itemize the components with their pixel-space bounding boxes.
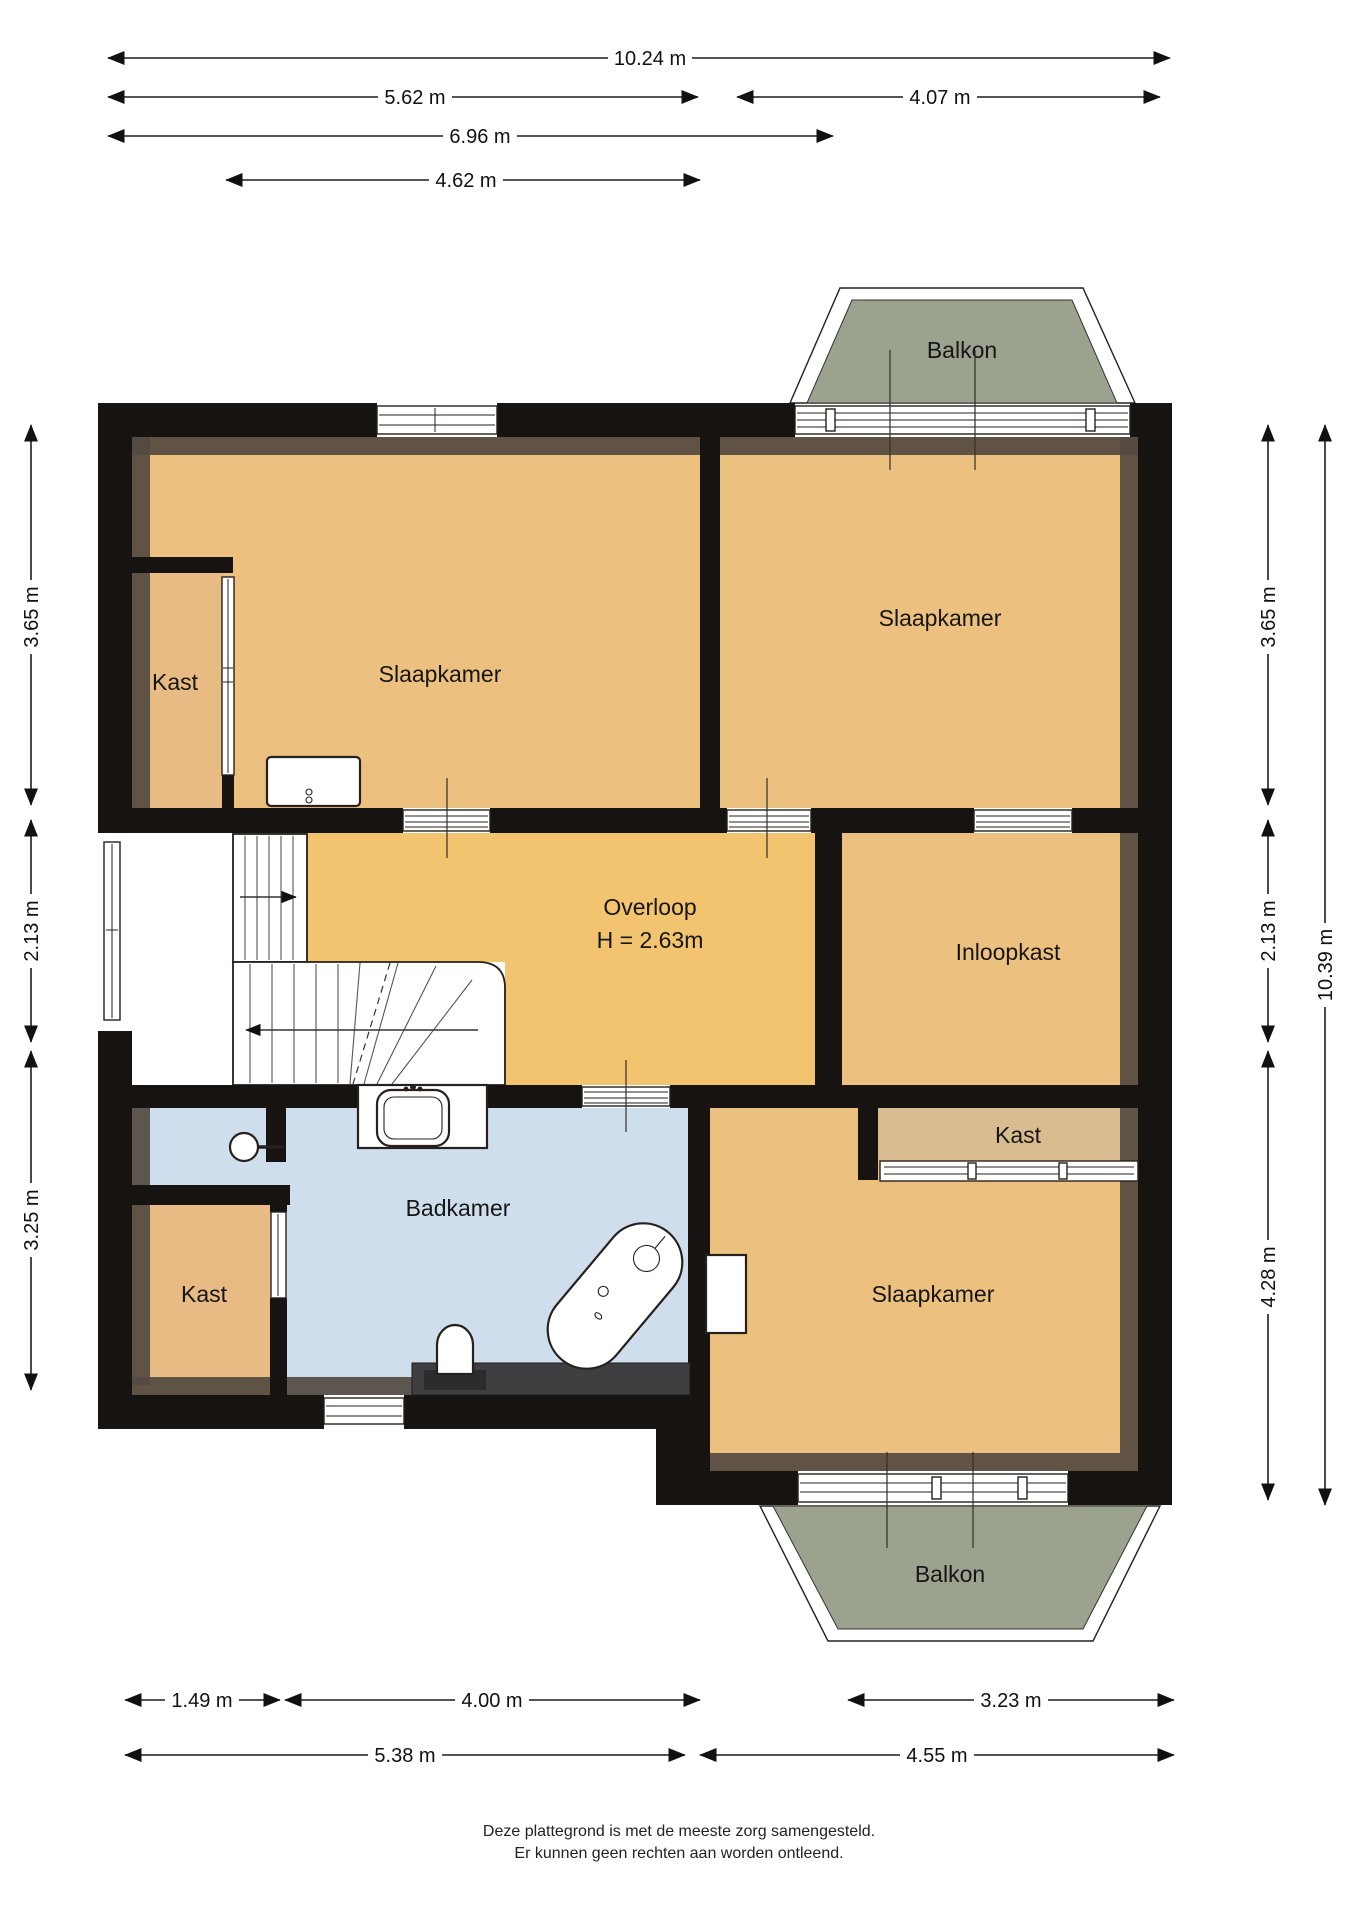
footer-line-1: Deze plattegrond is met de meeste zorg s… [483, 1823, 875, 1840]
svg-text:2.13 m: 2.13 m [1258, 900, 1280, 961]
door-leaf-bedroom-bottom [706, 1255, 746, 1333]
label-bedroom-bottom: Slaapkamer [872, 1281, 995, 1307]
dim-top-696: 6.96 m [108, 125, 833, 148]
dimensions-right: 3.65 m 2.13 m 4.28 m 10.39 m [1257, 425, 1337, 1505]
label-bathroom: Badkamer [406, 1195, 511, 1221]
dim-left-325: 3.25 m [20, 1051, 43, 1390]
dim-top-overall: 10.24 m [108, 47, 1170, 70]
dim-right-428: 4.28 m [1257, 1051, 1280, 1500]
dim-bottom-149: 1.49 m [125, 1689, 280, 1712]
dim-bottom-323: 3.23 m [848, 1689, 1174, 1712]
balcony-bottom-label: Balkon [915, 1561, 985, 1587]
svg-text:6.96 m: 6.96 m [449, 126, 510, 148]
svg-text:4.55 m: 4.55 m [906, 1745, 967, 1767]
svg-text:10.39 m: 10.39 m [1315, 929, 1337, 1001]
svg-text:3.25 m: 3.25 m [21, 1189, 43, 1250]
svg-text:4.07 m: 4.07 m [909, 87, 970, 109]
door-balcony-bottom [798, 1474, 1068, 1502]
label-closet-top-left: Kast [152, 669, 199, 695]
label-bedroom-top-right: Slaapkamer [879, 605, 1002, 631]
dim-left-365: 3.65 m [20, 425, 43, 805]
window-bedroom-top-left [377, 406, 497, 434]
sink [377, 1084, 449, 1146]
svg-text:4.00 m: 4.00 m [461, 1690, 522, 1712]
svg-text:3.23 m: 3.23 m [980, 1690, 1041, 1712]
dim-left-213: 2.13 m [20, 820, 43, 1042]
door-walk-in-closet [974, 810, 1072, 831]
dim-bottom-400: 4.00 m [285, 1689, 700, 1712]
svg-text:5.38 m: 5.38 m [374, 1745, 435, 1767]
svg-text:4.28 m: 4.28 m [1258, 1246, 1280, 1307]
floorplan-page: Balkon Balkon [0, 0, 1358, 1920]
dim-top-left-part: 5.62 m [108, 86, 698, 109]
svg-text:5.62 m: 5.62 m [384, 87, 445, 109]
svg-text:3.65 m: 3.65 m [1258, 586, 1280, 647]
footer-line-2: Er kunnen geen rechten aan worden ontlee… [514, 1845, 843, 1862]
svg-text:3.65 m: 3.65 m [21, 586, 43, 647]
balcony-bottom: Balkon [760, 1506, 1160, 1641]
svg-text:1.49 m: 1.49 m [171, 1690, 232, 1712]
label-landing: Overloop [603, 894, 696, 920]
svg-text:2.13 m: 2.13 m [21, 900, 43, 961]
dim-top-462: 4.62 m [226, 169, 700, 192]
dim-right-365: 3.65 m [1257, 425, 1280, 805]
door-landing-bedroom-right [727, 810, 811, 831]
dim-right-overall: 10.39 m [1314, 425, 1337, 1505]
svg-text:4.62 m: 4.62 m [435, 170, 496, 192]
label-bedroom-top-left: Slaapkamer [379, 661, 502, 687]
svg-text:10.24 m: 10.24 m [614, 48, 686, 70]
dimensions-left: 3.65 m 2.13 m 3.25 m [20, 425, 43, 1390]
door-closet-top-left [222, 577, 234, 775]
dim-bottom-455: 4.55 m [700, 1744, 1174, 1767]
floorplan-drawing: Balkon Balkon [0, 0, 1358, 1920]
dimensions-top: 10.24 m 5.62 m 4.07 m 6.96 m 4.62 m [108, 47, 1170, 192]
label-closet-bedroom: Kast [995, 1122, 1042, 1148]
footer-disclaimer: Deze plattegrond is met de meeste zorg s… [483, 1823, 875, 1862]
stairs-upper-flight [233, 834, 307, 962]
door-closet-bottom-left [271, 1212, 286, 1298]
balcony-top: Balkon [790, 288, 1135, 403]
label-walk-in-closet: Inloopkast [956, 939, 1061, 965]
dim-top-right-part: 4.07 m [737, 86, 1160, 109]
dim-bottom-538: 5.38 m [125, 1744, 685, 1767]
window-bathroom [324, 1398, 404, 1424]
label-landing-height: H = 2.63m [597, 927, 704, 953]
door-balcony-top [795, 406, 1130, 434]
door-closet-bedroom [880, 1161, 1138, 1181]
balcony-top-label: Balkon [927, 337, 997, 363]
window-stairwell-left [104, 842, 120, 1020]
dim-right-213: 2.13 m [1257, 820, 1280, 1042]
dresser [267, 757, 360, 806]
dimensions-bottom: 1.49 m 4.00 m 3.23 m 5.38 m 4.55 m [125, 1689, 1174, 1767]
label-closet-bottom-left: Kast [181, 1281, 228, 1307]
